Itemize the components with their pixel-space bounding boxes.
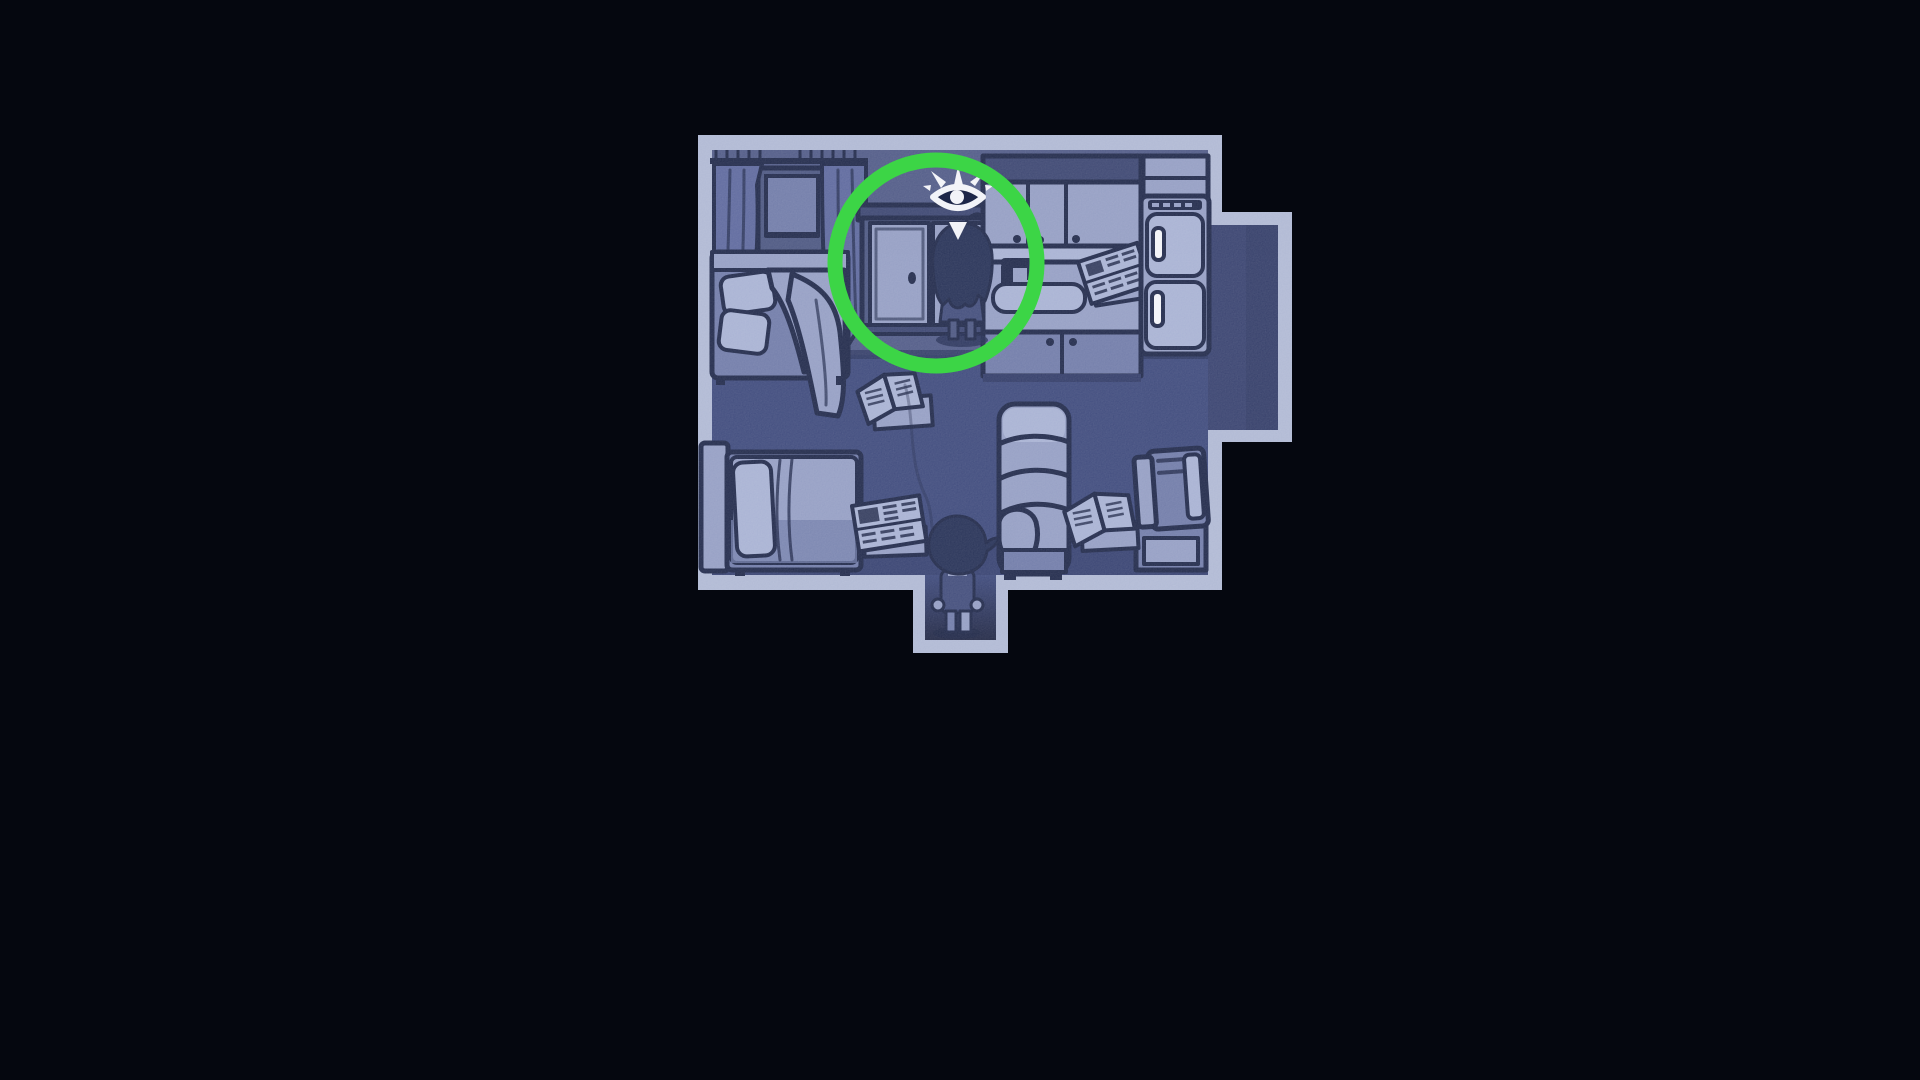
game-scene (0, 0, 1920, 1080)
eye-pupil (950, 190, 964, 204)
texture-overlay (690, 128, 1300, 660)
game-viewport[interactable]: Dark night-time top-down game room rende… (0, 0, 1920, 1080)
room (690, 128, 1300, 660)
